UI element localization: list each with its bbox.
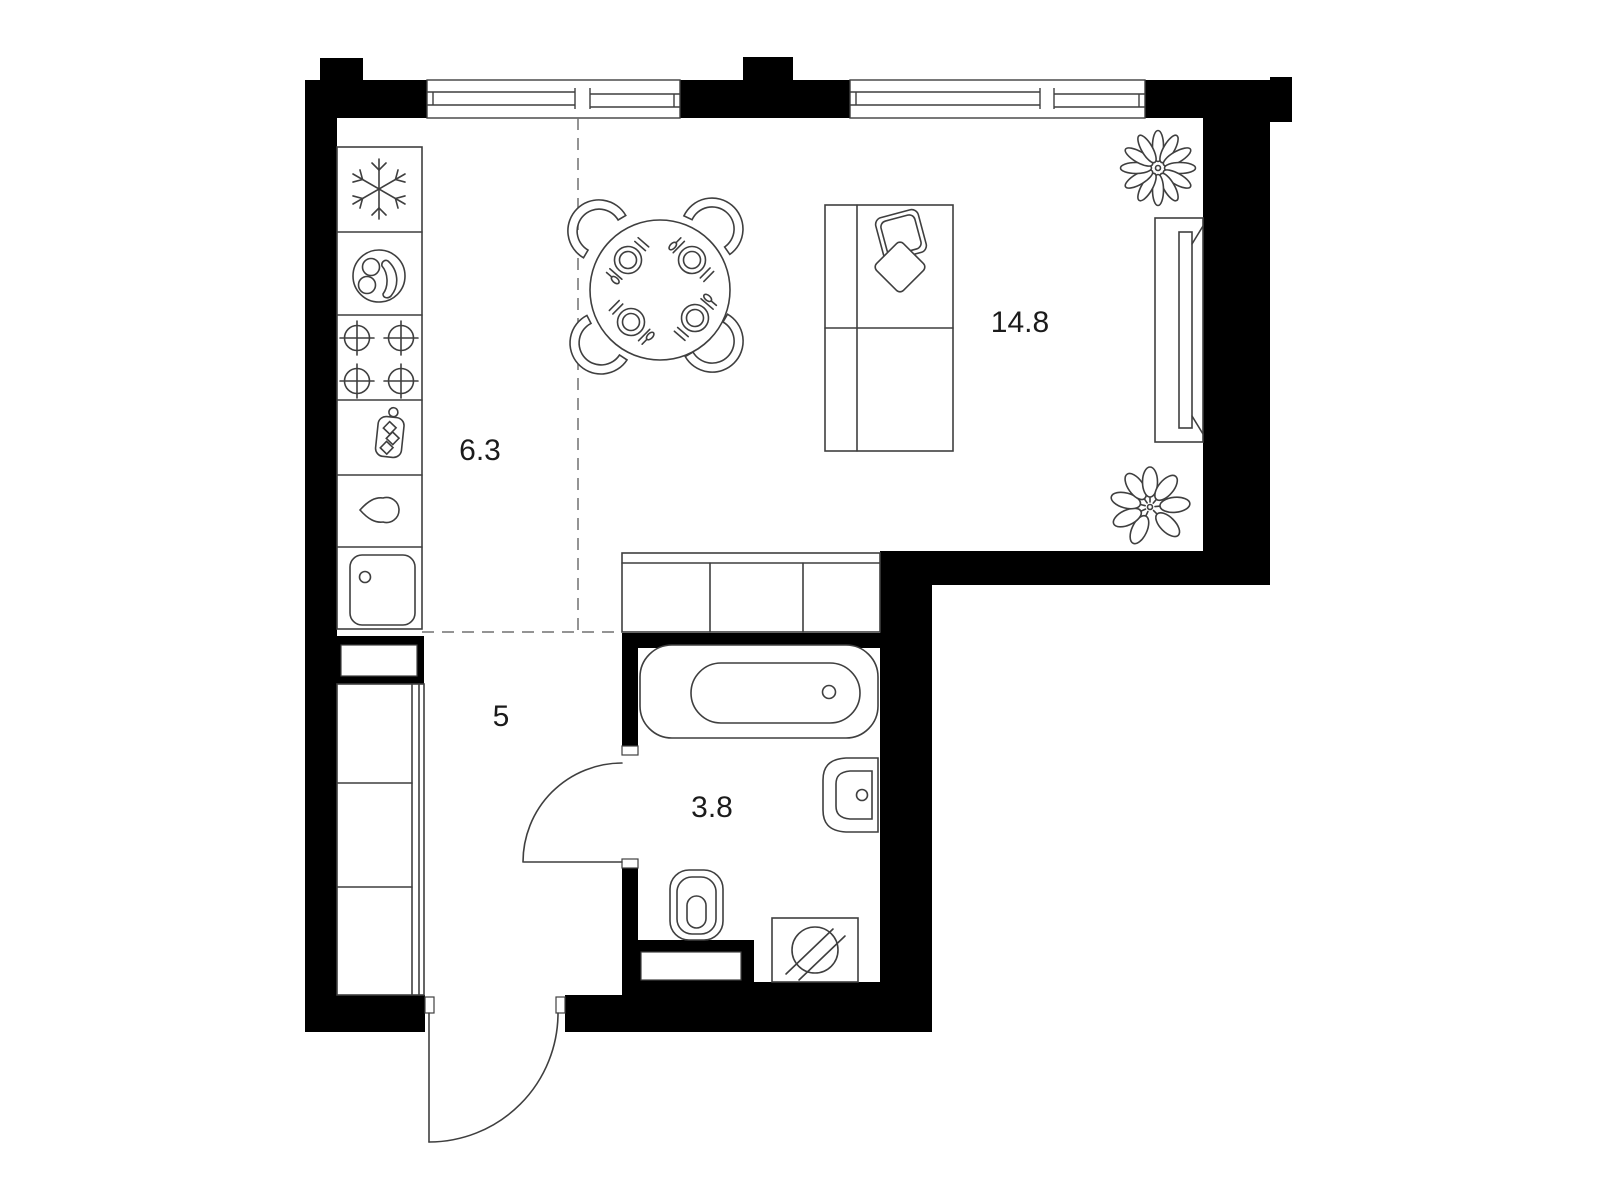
window-1 <box>427 80 680 118</box>
bathroom-right-wall <box>880 551 932 1032</box>
bathtub <box>640 645 878 738</box>
living-area-label: 14.8 <box>991 306 1049 339</box>
storage-cabinet-row <box>622 553 880 632</box>
floor-plan-page: 6.3 14.8 5 3.8 <box>0 0 1600 1200</box>
left-wall <box>305 80 337 1032</box>
bathroom-door <box>523 746 638 868</box>
bathroom-duct-inset <box>641 952 741 980</box>
bottom-wall-middle <box>565 995 622 1032</box>
pillar-top-right <box>1270 77 1292 122</box>
kitchen-area-label: 6.3 <box>459 434 501 467</box>
bathroom-left-wall-lower <box>622 868 638 995</box>
kitchen-duct-inset <box>341 645 417 676</box>
serving-plate-icon <box>353 250 405 302</box>
walls <box>305 57 1292 1032</box>
bottom-wall-bathroom <box>622 982 932 1032</box>
kitchen-sink-icon <box>350 555 415 625</box>
sofa-two-seat <box>825 205 953 451</box>
round-dining-table <box>590 220 730 360</box>
tv-console <box>1155 218 1203 442</box>
step-wall <box>880 551 1270 585</box>
leafy-plant-icon <box>1109 467 1190 546</box>
bottom-wall-left <box>305 995 425 1032</box>
toilet <box>670 870 723 940</box>
kitchen-counter <box>337 147 422 629</box>
bathroom-left-wall-upper <box>622 638 638 746</box>
tv-icon <box>1179 232 1192 428</box>
bathroom-area-label: 3.8 <box>691 791 733 824</box>
wardrobe <box>337 684 424 995</box>
entrance-door <box>425 997 565 1142</box>
floor-plan: 6.3 14.8 5 3.8 <box>0 0 1600 1200</box>
washing-machine-icon <box>772 918 858 982</box>
washbasin <box>823 758 878 832</box>
dining-set <box>568 198 743 374</box>
window-2 <box>850 80 1145 118</box>
pillar-top-middle <box>743 57 793 81</box>
flower-plant-icon <box>1121 131 1196 206</box>
entrance-door-swing-arc <box>429 1013 558 1142</box>
right-wall <box>1203 80 1270 585</box>
bathroom-door-swing-arc <box>523 763 622 862</box>
hallway-area-label: 5 <box>493 700 510 733</box>
pillar-top-left <box>320 58 363 81</box>
top-wall-middle <box>680 80 850 118</box>
